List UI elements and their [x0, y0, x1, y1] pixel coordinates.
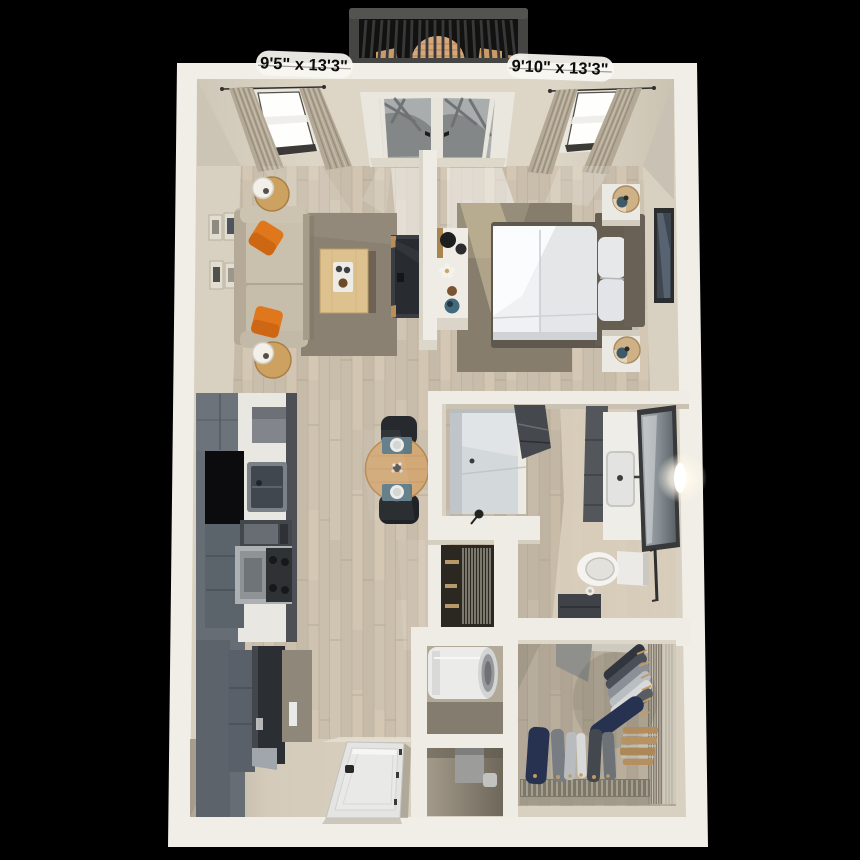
svg-text:9'10" x 13'3": 9'10" x 13'3"	[511, 57, 609, 79]
svg-text:9'5" x 13'3": 9'5" x 13'3"	[260, 54, 348, 75]
